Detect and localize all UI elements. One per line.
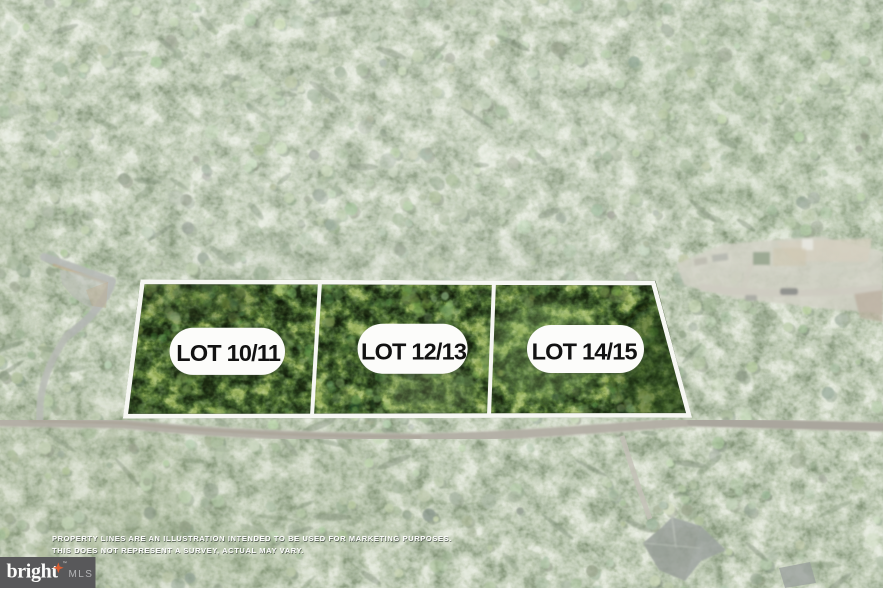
svg-text:LOT 12/13: LOT 12/13 xyxy=(361,339,467,365)
svg-text:MLS: MLS xyxy=(69,569,94,580)
svg-text:THIS DOES NOT REPRESENT A SURV: THIS DOES NOT REPRESENT A SURVEY, ACTUAL… xyxy=(52,546,304,555)
svg-text:LOT 10/11: LOT 10/11 xyxy=(176,340,281,366)
svg-text:LOT 14/15: LOT 14/15 xyxy=(532,339,638,365)
svg-text:bright: bright xyxy=(7,561,59,583)
svg-text:™: ™ xyxy=(63,561,68,566)
svg-text:PROPERTY LINES ARE AN ILLUSTRA: PROPERTY LINES ARE AN ILLUSTRATION INTEN… xyxy=(52,534,452,543)
